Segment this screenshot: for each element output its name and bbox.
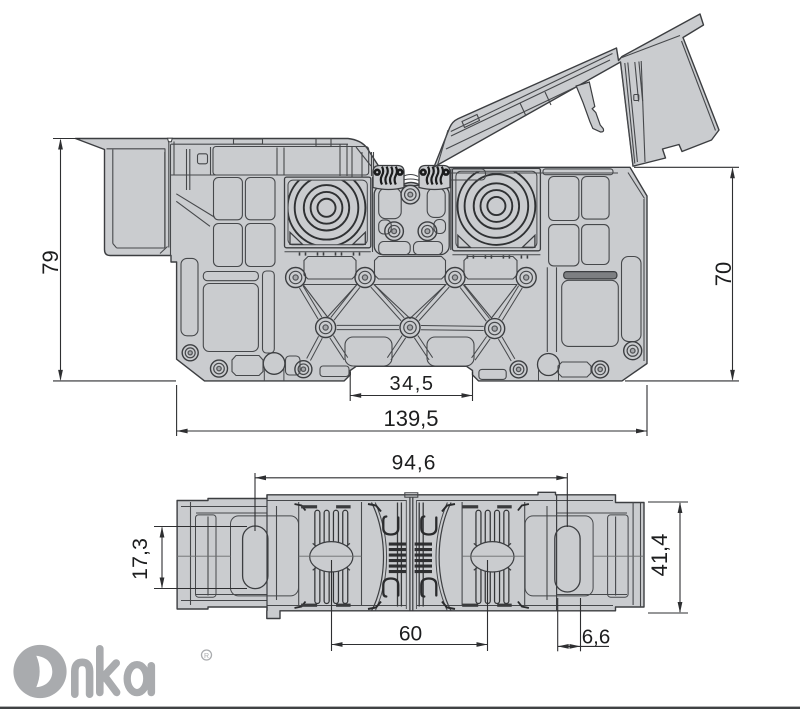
svg-text:94,6: 94,6 (392, 452, 437, 475)
svg-text:139,5: 139,5 (383, 406, 438, 431)
svg-text:60: 60 (399, 623, 422, 646)
svg-text:70: 70 (711, 262, 736, 286)
svg-text:79: 79 (38, 250, 63, 274)
svg-text:R: R (204, 653, 209, 660)
svg-text:6,6: 6,6 (582, 626, 611, 649)
svg-text:17,3: 17,3 (128, 538, 152, 580)
svg-text:41,4: 41,4 (647, 534, 672, 577)
svg-text:34,5: 34,5 (390, 373, 435, 395)
